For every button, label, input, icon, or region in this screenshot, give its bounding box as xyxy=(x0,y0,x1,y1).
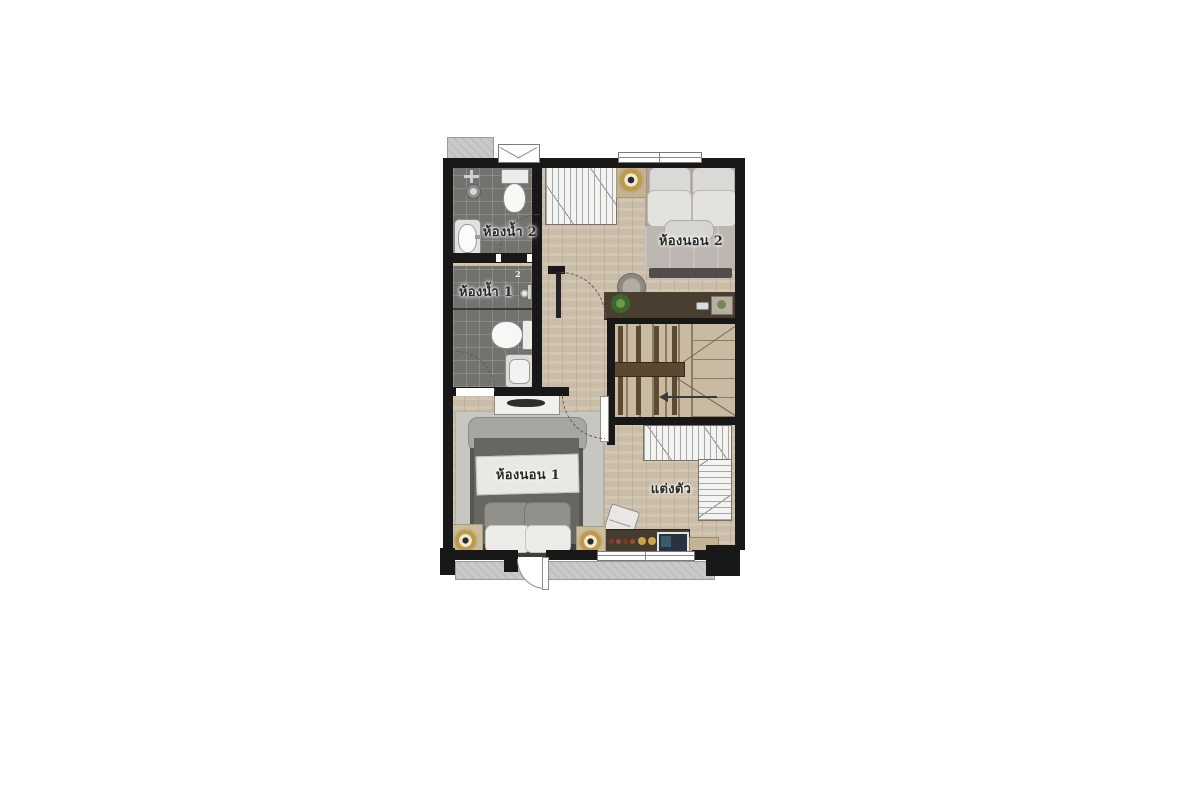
bed-bedroom-1 xyxy=(466,417,587,557)
wardrobe-dressing-top xyxy=(643,425,732,461)
room-label-bedroom-2: ห้องนอน 2 xyxy=(645,230,737,251)
wall-door-jamb-block xyxy=(504,550,518,572)
room-label-bedroom-1: ห้องนอน 1 xyxy=(477,464,579,485)
toilet-1 xyxy=(491,319,532,350)
balcony xyxy=(455,561,715,580)
bed-bedroom-2 xyxy=(645,163,737,278)
floor-plan: ห้องนอน 2 แต่งตัว xyxy=(0,0,1200,800)
ac-ledge xyxy=(447,137,494,160)
shower-drain-icon xyxy=(466,184,481,199)
room-label-bathroom-2: ห้องน้ำ 2 xyxy=(470,221,550,242)
sink-1 xyxy=(505,354,534,388)
door-leaf-balcony xyxy=(542,557,549,590)
window-bedroom-1-south xyxy=(597,551,695,561)
balcony-door-swing xyxy=(517,559,545,589)
wall-right xyxy=(735,158,745,550)
stair-direction-arrow-icon xyxy=(662,396,717,398)
toilet-2 xyxy=(500,169,528,213)
desk-bedroom-2 xyxy=(604,292,735,320)
wall-corner-foot-left xyxy=(440,548,455,575)
wall-stair-bottom xyxy=(607,417,737,425)
stair-handrail xyxy=(613,362,685,377)
window-bathroom-2 xyxy=(498,144,540,163)
lamp-right-icon xyxy=(580,531,601,552)
wall-stair-top xyxy=(607,318,737,324)
lamp-bedroom-2-icon xyxy=(620,169,642,191)
room-label-bathroom-1: ห้องน้ำ 1 xyxy=(446,281,526,302)
room-label-dressing: แต่งตัว xyxy=(630,478,712,499)
wardrobe-bedroom-2 xyxy=(545,167,617,225)
shower-partition xyxy=(453,308,532,310)
wall-bottom-b xyxy=(546,550,598,560)
staircase xyxy=(613,324,735,417)
window-bedroom-2 xyxy=(618,152,702,163)
wall-corner-block-right xyxy=(706,545,740,576)
plant-icon xyxy=(611,294,630,313)
shower-valve-marker: 2 xyxy=(512,269,524,279)
wall-bathrooms-right xyxy=(532,158,542,395)
wall-left xyxy=(443,158,453,560)
shower-head-icon xyxy=(464,170,479,183)
lamp-left-icon xyxy=(455,530,476,551)
dresser-bedroom-1 xyxy=(494,393,560,415)
